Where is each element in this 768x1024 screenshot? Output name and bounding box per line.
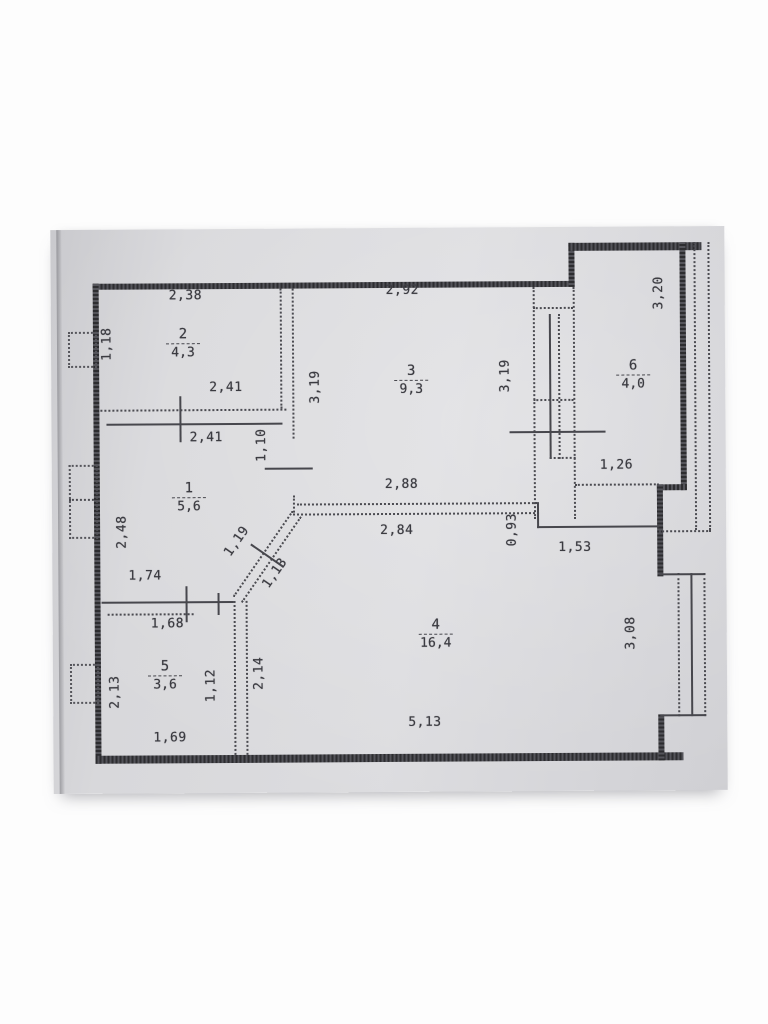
dim-label-room5-left: 2,13 [108,672,121,712]
room-label-1: 1 5,6 [166,481,212,513]
room-area: 4,3 [160,346,206,359]
door-tick [265,467,313,469]
room-number: 3 [388,364,434,378]
dim-label-room3-top: 2,92 [386,284,419,297]
wall-step-vert [537,502,539,528]
window-sill-midline [69,499,94,501]
room-area: 5,6 [166,500,212,513]
dim-label-room3-bottom: 2,88 [385,478,418,491]
dim-label-room5-right: 1,12 [204,666,217,706]
room-label-5: 5 3,6 [142,659,188,691]
dim-label-diag-upper: 1,19 [222,524,252,559]
window-line [677,573,680,716]
room-number: 6 [610,358,656,372]
dim-label-room4-right: 3,08 [624,613,637,653]
wall-step-horiz [537,525,659,528]
shaft-inner-line [549,314,552,459]
photographed-floor-plan: 2,38 2,92 1,18 2,41 2,41 1,10 3,19 3,19 … [50,226,727,794]
balcony-glazing-line [707,242,711,530]
shaft-rung [533,399,573,401]
dim-label-step-width: 1,53 [558,541,591,554]
dim-tick [179,396,181,442]
dim-label-room3-right: 3,19 [499,356,512,396]
dim-label-room2-inner: 2,41 [209,381,242,394]
room-number: 1 [166,481,212,495]
window-line [703,573,706,716]
wall-room2-room3 [280,289,283,409]
room-label-rule [166,343,200,344]
wall-top-left [93,281,575,290]
screenshot-root: { "document": { "kind": "apartment floor… [0,0,768,1024]
dim-label-room2-top: 2,38 [169,289,202,302]
room-label-rule [148,675,182,676]
room-area: 16,4 [413,637,459,650]
room-label-rule [419,634,453,635]
window-line [690,573,693,716]
paper-edge-shadow [56,230,64,794]
wall-room1-room5 [102,601,234,604]
shaft-rung [550,457,576,459]
dim-label-room4-bottom: 5,13 [408,716,441,729]
wall-room6-bottom [575,483,659,486]
window-sill-room5 [70,664,99,704]
dim-label-room6-bottom: 1,26 [600,459,633,472]
room-label-rule [394,380,428,381]
wall-room2-room1 [100,409,286,412]
wall-room2-room3 [292,289,295,439]
window-cap [659,573,705,575]
dim-label-step-height: 0,93 [506,510,519,550]
wall-room3-room4 [297,512,539,515]
wall-bottom [95,752,683,764]
room-area: 9,3 [388,383,434,396]
shaft-rung [533,307,573,309]
room-label-rule [616,374,650,375]
room-label-2: 2 4,3 [160,327,206,359]
wall-room3-room4 [297,502,537,505]
room-label-3: 3 9,3 [388,364,434,396]
room-area: 4,0 [610,377,656,390]
dim-label-room5-bottom: 1,69 [153,731,186,744]
room-label-6: 6 4,0 [610,358,656,390]
shaft-inner-line [558,314,561,459]
wall-room5-right [234,601,237,755]
wall-right-room6 [679,242,687,490]
dim-label-room1-bottom: 1,74 [128,569,161,582]
window-sill-room1 [69,465,98,539]
dim-label-room1-left: 2,48 [116,512,129,552]
balcony-glazing-bottom [659,530,711,532]
dim-label-room5-top: 1,68 [151,617,184,630]
dim-label-room4-top: 2,84 [380,524,413,537]
dim-tick [185,586,187,622]
room-number: 4 [413,618,459,632]
wall-right-room4-lower [658,714,664,760]
room-area: 3,6 [142,678,188,691]
room-number: 2 [160,327,206,341]
dim-label-room2-left: 1,18 [100,324,113,364]
dim-tick [218,593,220,615]
dim-label-room6-side: 3,20 [652,273,665,313]
wall-room5-right [246,601,249,755]
room-label-4: 4 16,4 [413,618,459,650]
dim-label-room3-left: 3,19 [309,367,322,407]
shaft-wall [533,287,536,519]
room-number: 5 [142,659,188,673]
dim-label-corridor: 2,14 [252,653,265,693]
room-label-rule [172,497,206,498]
dim-label-door-width: 1,10 [255,425,268,465]
dim-line [510,431,606,433]
dim-label-room1-top: 2,41 [190,431,223,444]
window-cap [660,714,706,716]
window-sill-room2 [68,332,97,368]
balcony-glazing-line [693,242,697,530]
